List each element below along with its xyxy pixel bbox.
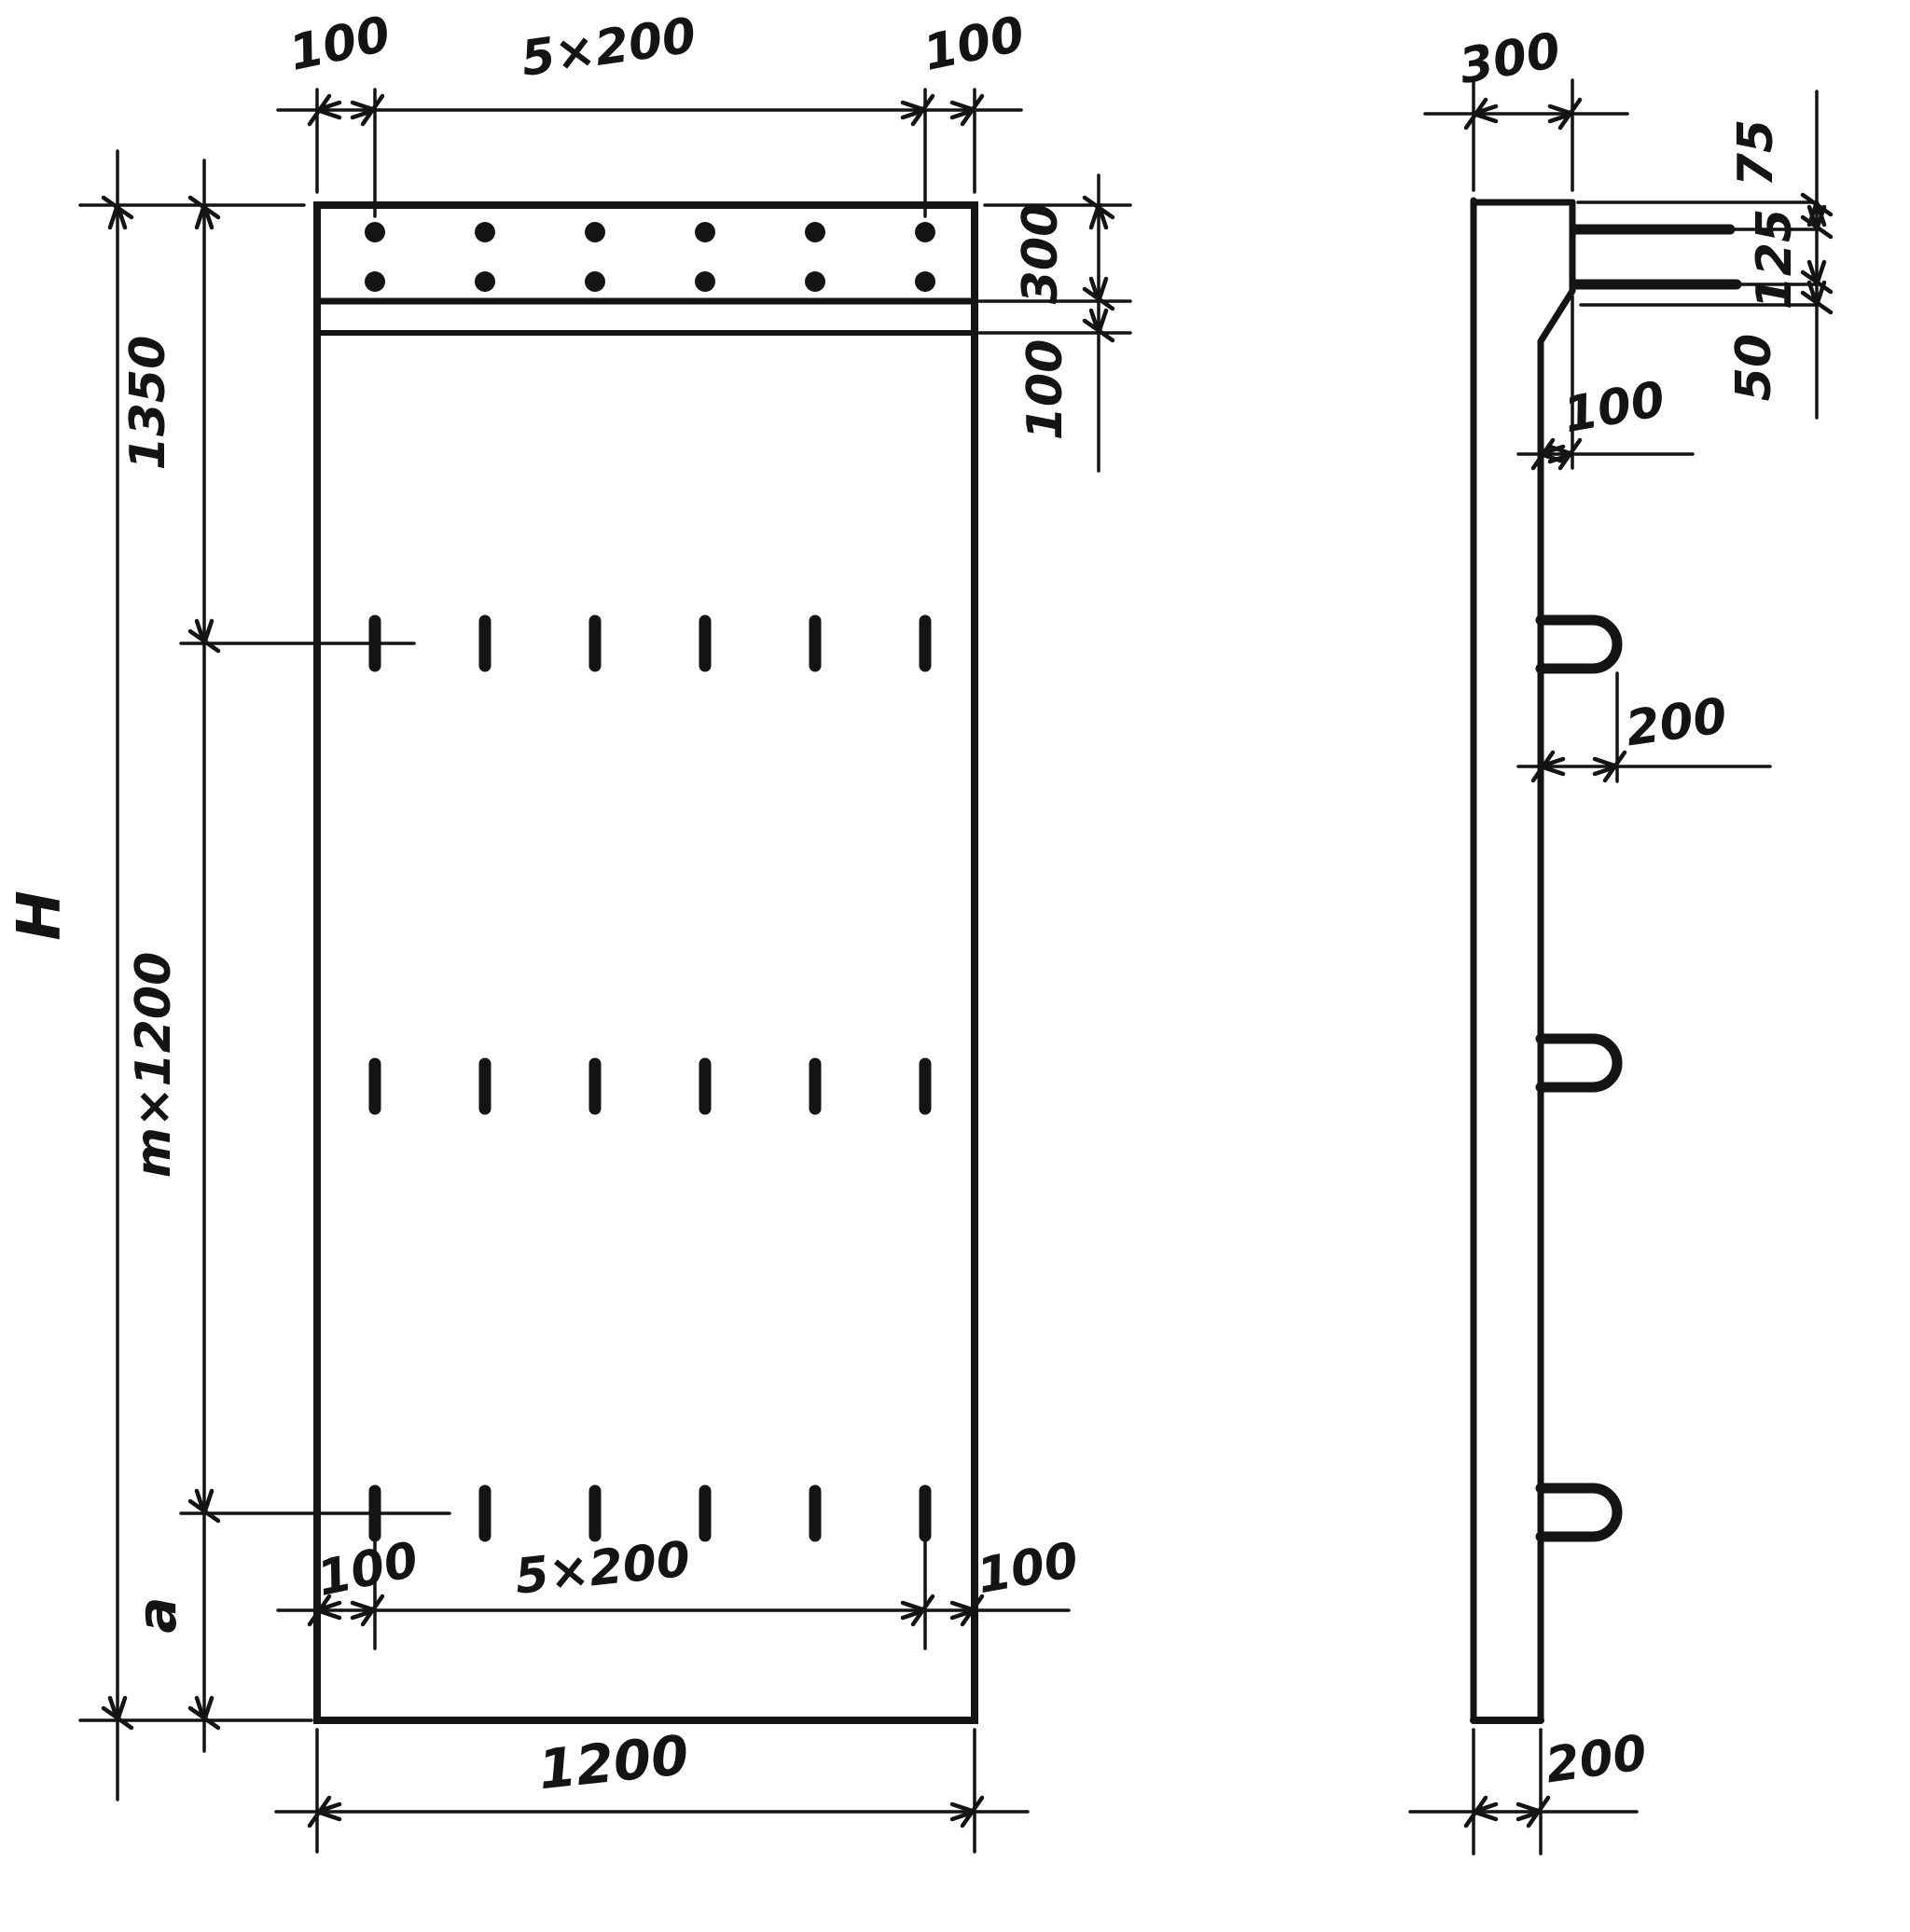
slot-row-1 [375,621,925,666]
step-slope [1541,291,1572,341]
side-bar-dimensions: 75 125 50 [1578,91,1831,418]
dim-label-bar-bottom-offset: 50 [1726,334,1782,401]
dim-label-bar-spacing: 125 [1747,209,1803,310]
dot [915,271,935,292]
dot [805,222,825,242]
dot [365,271,385,292]
dot [475,222,495,242]
dot [475,271,495,292]
front-view: 100 5×200 100 300 100 [6,7,1130,1852]
front-width-dimension: 1200 [276,1723,1028,1852]
dot [805,271,825,292]
dim-label-top-middle: 5×200 [518,7,699,88]
dim-label-bar-top-offset: 75 [1728,119,1784,186]
side-loop-dimension: 200 [1518,673,1770,781]
dim-label-top-left: 100 [284,7,395,82]
front-right-dimension: 300 100 [979,175,1130,471]
side-top-dimension: 300 [1425,22,1627,190]
dot [585,222,605,242]
dim-label-overall-width: 1200 [535,1723,692,1802]
front-bottom-dimension: 100 5×200 100 [278,1531,1083,1649]
front-top-dimension: 100 5×200 100 [278,7,1030,216]
lifting-loop [1541,1039,1617,1087]
dim-label-module-height: m×1200 [126,952,182,1178]
anchor-dots [365,222,935,292]
dot [695,271,715,292]
dim-label-loop-length: 200 [1623,688,1731,758]
dim-label-bottom-right: 100 [973,1532,1082,1605]
dim-label-total-height: H [6,890,75,941]
dim-label-head-height: 300 [1013,203,1069,305]
panel-drawing: 100 5×200 100 300 100 [0,0,1910,1932]
lifting-loop [1541,1488,1617,1537]
dot [585,271,605,292]
lifting-loop [1541,620,1617,669]
dim-label-panel-thickness: 200 [1543,1725,1651,1795]
dim-label-lower-height: a [125,1596,188,1633]
dim-label-side-top-width: 300 [1455,22,1564,95]
protruding-bars [1574,229,1737,284]
dot [365,222,385,242]
dim-label-strip-height: 100 [1017,339,1073,441]
lifting-loops [1541,620,1617,1537]
dot [915,222,935,242]
slot-row-3 [375,1491,925,1536]
dim-label-top-right: 100 [919,7,1030,82]
dim-label-bottom-middle: 5×200 [512,1531,693,1605]
dot [695,222,715,242]
panel-outline [317,205,975,1720]
side-step-dimension: 100 [1518,297,1693,468]
dim-label-bottom-left: 100 [312,1532,423,1608]
side-view: 300 75 125 50 100 [1410,22,1831,1854]
slot-row-2 [375,1064,925,1109]
side-bottom-dimension: 200 [1410,1725,1651,1854]
dim-label-step-depth: 100 [1559,371,1668,444]
dim-label-upper-height: 1350 [120,336,176,471]
